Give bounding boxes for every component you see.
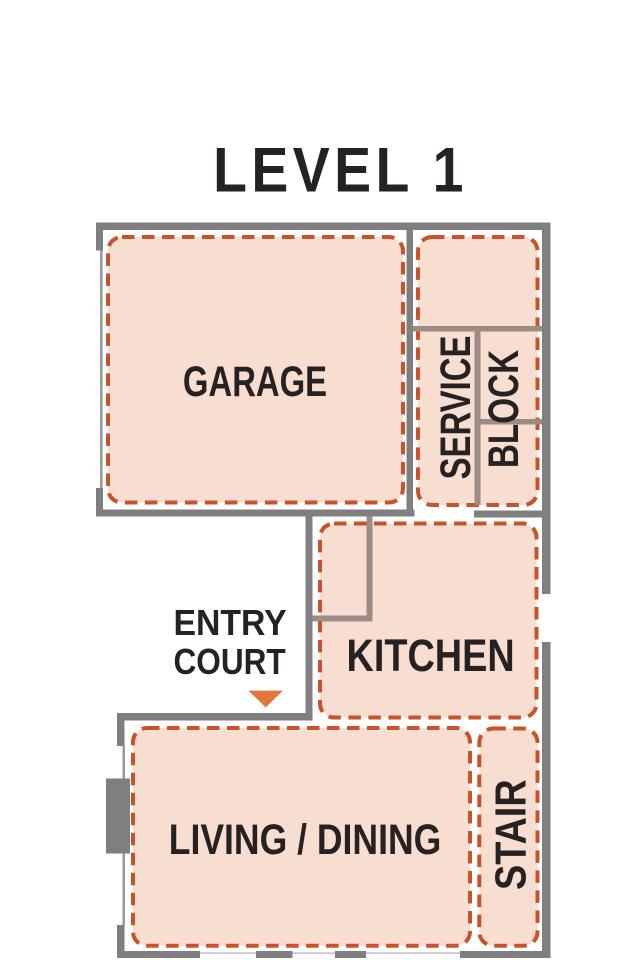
svg-text:BLOCK: BLOCK (480, 350, 528, 468)
svg-text:ENTRY: ENTRY (174, 603, 287, 643)
svg-text:LIVING / DINING: LIVING / DINING (169, 816, 442, 864)
svg-text:COURT: COURT (174, 642, 287, 682)
svg-text:GARAGE: GARAGE (183, 358, 327, 406)
svg-text:SERVICE: SERVICE (432, 336, 480, 480)
svg-text:KITCHEN: KITCHEN (347, 630, 515, 681)
svg-text:STAIR: STAIR (486, 779, 535, 890)
svg-text:LEVEL 1: LEVEL 1 (213, 134, 468, 205)
